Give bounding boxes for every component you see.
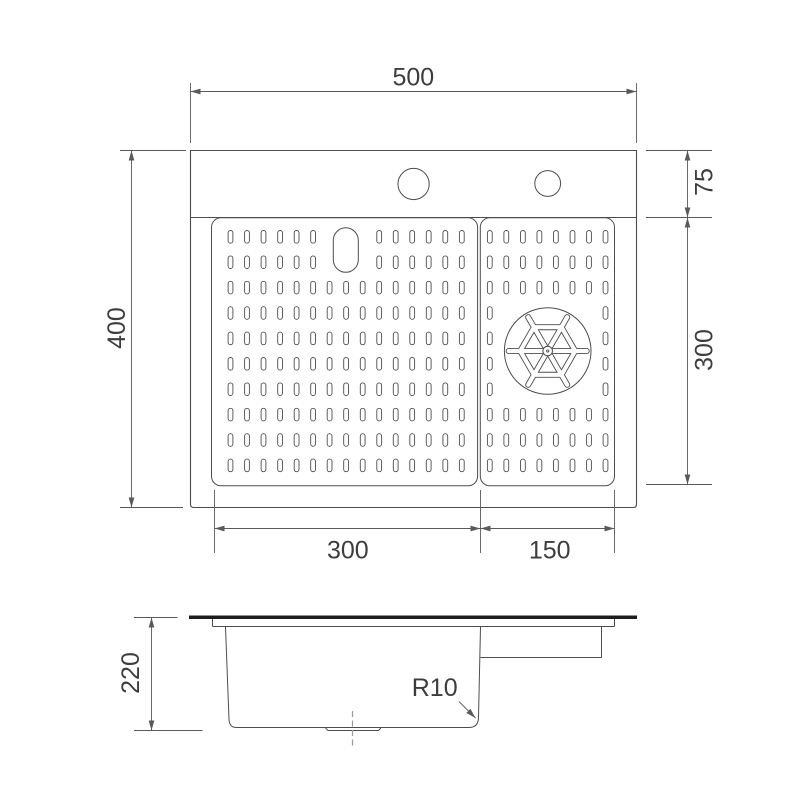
svg-text:300: 300 xyxy=(691,329,719,371)
svg-text:150: 150 xyxy=(529,537,571,565)
svg-text:R10: R10 xyxy=(412,674,458,702)
svg-text:220: 220 xyxy=(117,652,145,694)
svg-text:500: 500 xyxy=(392,63,434,91)
svg-text:75: 75 xyxy=(691,168,719,196)
svg-text:300: 300 xyxy=(327,537,369,565)
svg-text:400: 400 xyxy=(103,307,131,349)
